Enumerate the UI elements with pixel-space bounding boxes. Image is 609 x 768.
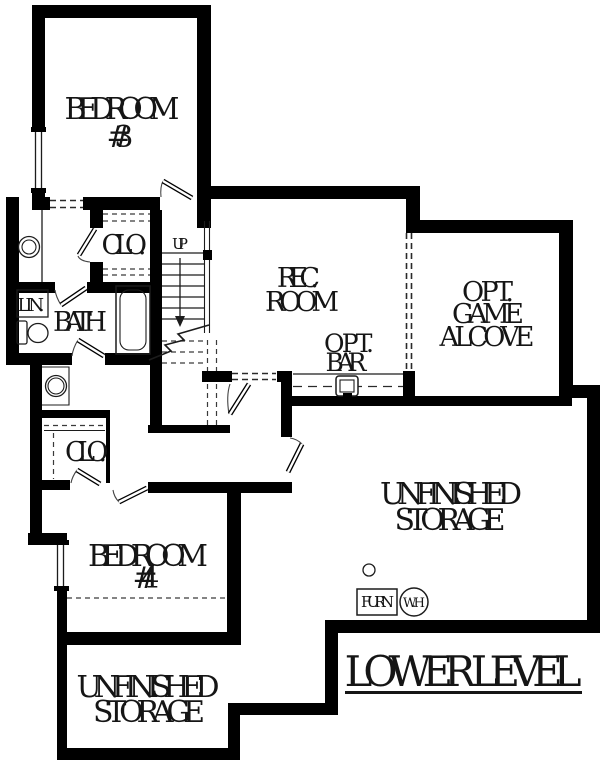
door-icon xyxy=(228,384,249,414)
plan-title-text: LOWER LEVEL xyxy=(345,647,582,696)
door-icon xyxy=(71,470,100,484)
storage-right-label-line2: STORAGE xyxy=(395,503,506,538)
game-alcove-label-line3: ALCOVE xyxy=(439,322,535,353)
floor-plan-drawing: BEDROOM #3 CLO. UP REC. ROOM OPT. GAME A… xyxy=(0,0,609,768)
door-icon xyxy=(161,181,192,198)
wall xyxy=(90,210,103,228)
wall xyxy=(559,220,573,392)
wall xyxy=(42,480,70,490)
door-icon xyxy=(113,488,147,502)
plan-title-underline xyxy=(345,691,582,694)
plan-title: LOWER LEVEL xyxy=(345,647,583,696)
wall xyxy=(202,371,232,382)
wall xyxy=(325,620,338,715)
wall xyxy=(403,371,415,401)
wall xyxy=(6,353,72,365)
laundry-tub-icon xyxy=(42,367,69,405)
bar-label-line2: BAR xyxy=(326,348,368,377)
under-stair-dashes xyxy=(208,340,217,425)
bar-sink-icon xyxy=(336,376,358,397)
wall xyxy=(42,410,110,418)
stairs-arrowhead xyxy=(175,316,185,327)
wall xyxy=(150,210,162,433)
door-icon xyxy=(55,288,86,305)
bathtub-icon xyxy=(116,286,150,354)
closet-upper-label: CLO. xyxy=(102,230,147,261)
floor-drain-icon xyxy=(363,564,375,576)
wall xyxy=(32,5,210,18)
bedroom3-label-line2: #3 xyxy=(107,120,134,155)
wall xyxy=(406,220,573,233)
window-icon xyxy=(54,540,69,591)
storage-left-label-line2: STORAGE xyxy=(93,695,205,730)
cased-opening xyxy=(232,374,276,380)
sink-icon xyxy=(19,237,40,258)
closet-lower-label: CLO. xyxy=(65,437,107,468)
wall xyxy=(325,620,600,633)
wall xyxy=(32,5,45,132)
wall xyxy=(83,197,160,210)
window-icon xyxy=(31,127,46,193)
rec-room-label-line2: ROOM xyxy=(265,287,339,318)
toilet-icon xyxy=(17,321,48,344)
door-icon xyxy=(288,438,302,472)
wall xyxy=(57,632,239,645)
wall xyxy=(227,482,241,645)
wall xyxy=(30,358,42,535)
wall xyxy=(228,703,338,715)
wall xyxy=(32,197,50,210)
wall xyxy=(197,186,420,199)
wall xyxy=(57,748,240,760)
wall xyxy=(285,396,572,406)
cased-opening xyxy=(50,201,83,208)
stairs-up-label: UP xyxy=(172,235,188,253)
linen-label: LIN. xyxy=(18,295,45,316)
door-icon xyxy=(72,340,104,356)
furnace-label: FURN. xyxy=(361,593,394,611)
wall xyxy=(90,262,103,284)
bath-label: BATH xyxy=(53,307,107,338)
alcove-separator xyxy=(407,233,412,371)
wall xyxy=(587,385,600,633)
wall xyxy=(148,482,292,493)
floor-plan-page: BEDROOM #3 CLO. UP REC. ROOM OPT. GAME A… xyxy=(0,0,609,768)
bedroom4-label-line2: #4 xyxy=(133,561,160,596)
wall xyxy=(57,588,67,760)
wall xyxy=(148,425,230,433)
water-heater-label: W.H xyxy=(403,596,425,611)
door-icon xyxy=(78,229,95,262)
